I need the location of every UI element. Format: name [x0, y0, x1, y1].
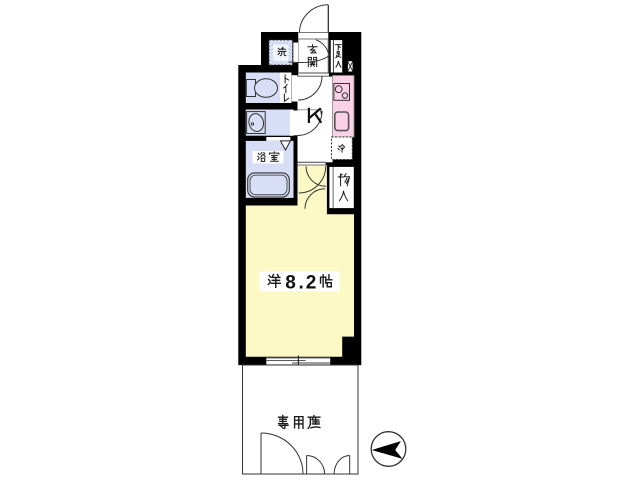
- svg-text:.: .: [299, 273, 304, 294]
- svg-text:2: 2: [306, 273, 317, 294]
- svg-text:8: 8: [285, 273, 296, 294]
